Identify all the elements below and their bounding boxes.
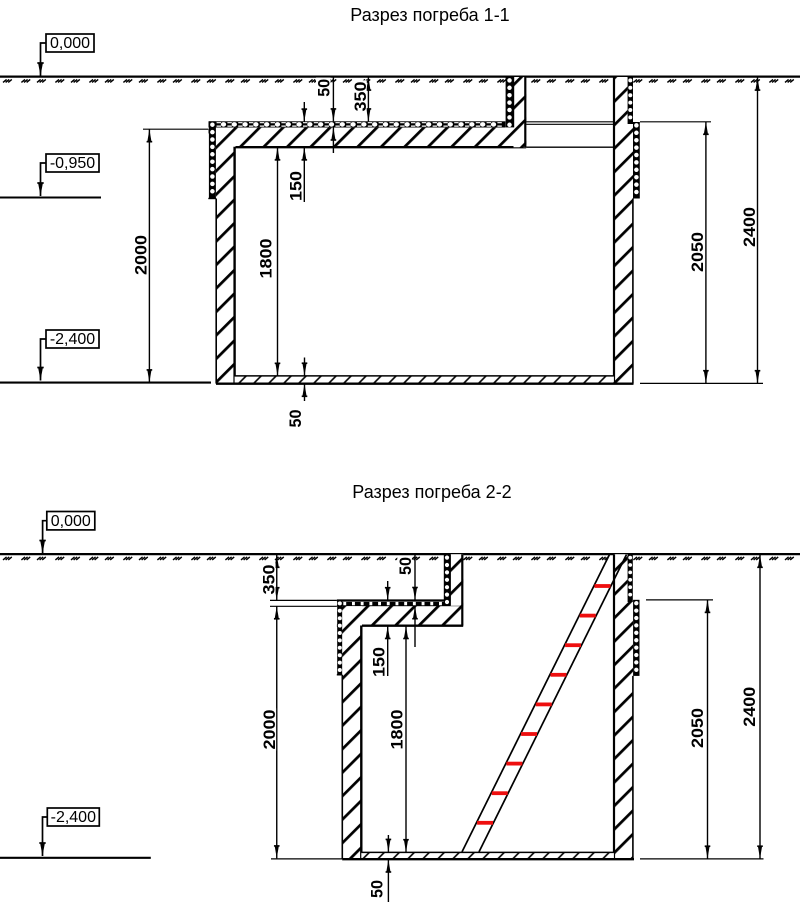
svg-text:150: 150 (370, 647, 389, 677)
svg-text:2000: 2000 (131, 235, 150, 275)
svg-text:-0,950: -0,950 (50, 155, 95, 172)
svg-text:0,000: 0,000 (50, 35, 90, 52)
svg-text:-2,400: -2,400 (51, 809, 96, 826)
svg-text:-2,400: -2,400 (50, 331, 95, 348)
svg-text:1800: 1800 (388, 710, 407, 750)
svg-text:50: 50 (396, 557, 415, 575)
svg-text:2400: 2400 (740, 687, 759, 727)
svg-text:50: 50 (286, 410, 305, 428)
svg-text:Разрез погреба 1-1: Разрез погреба 1-1 (350, 5, 509, 25)
svg-text:2050: 2050 (688, 232, 707, 272)
svg-text:2400: 2400 (740, 207, 759, 247)
svg-text:50: 50 (368, 880, 387, 898)
svg-text:50: 50 (315, 79, 334, 97)
svg-text:1800: 1800 (257, 239, 276, 279)
svg-text:2000: 2000 (260, 710, 279, 750)
svg-text:150: 150 (286, 171, 305, 201)
svg-text:2050: 2050 (688, 708, 707, 748)
svg-text:Разрез погреба 2-2: Разрез погреба 2-2 (352, 482, 511, 502)
svg-text:350: 350 (351, 82, 370, 112)
svg-text:350: 350 (260, 565, 279, 595)
svg-text:0,000: 0,000 (51, 513, 91, 530)
